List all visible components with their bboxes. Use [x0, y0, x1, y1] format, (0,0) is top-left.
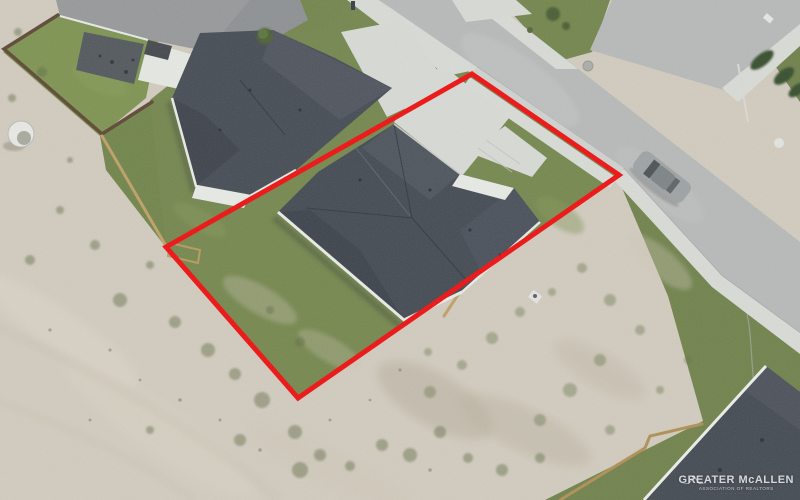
photo-grain: [0, 0, 800, 500]
scene-svg: [0, 0, 800, 500]
aerial-photo: GREATER McALLEN ASSOCIATION OF REALTORS …: [0, 0, 800, 500]
